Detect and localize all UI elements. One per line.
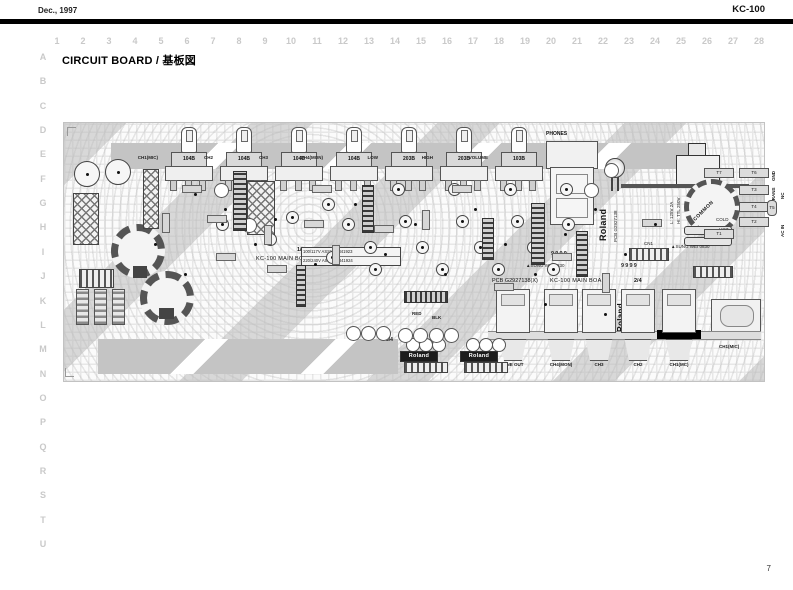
transistor — [436, 263, 449, 276]
ac-in-label: AC IN — [780, 225, 785, 237]
transistor — [369, 263, 382, 276]
pot-volume: 103BVOLUME — [490, 127, 546, 191]
sub-board-connector — [464, 362, 508, 373]
jack-ch1-mc-: CH1(MC) — [660, 289, 698, 381]
transistor — [547, 263, 560, 276]
grid-row-T: T — [36, 515, 50, 525]
solder-pad — [154, 243, 157, 246]
pot-base — [330, 166, 378, 181]
transistor — [511, 215, 524, 228]
grid-col-15: 15 — [411, 36, 431, 46]
pot-channel-label: CH2 — [183, 155, 213, 160]
solder-pad — [274, 218, 277, 221]
resistor — [422, 210, 430, 230]
solder-pad — [184, 273, 187, 276]
grid-col-2: 2 — [73, 36, 93, 46]
capacitor — [584, 183, 599, 198]
solder-pad — [564, 233, 567, 236]
pot-legs — [280, 180, 316, 189]
corner-mark-top-left — [67, 127, 76, 136]
pot-notch — [461, 130, 468, 142]
jack-plug — [663, 339, 695, 361]
resistor — [264, 225, 272, 245]
pot-notch — [406, 130, 413, 142]
ic-package — [233, 171, 247, 231]
transistor — [392, 183, 405, 196]
transistor — [342, 218, 355, 231]
grid-row-J: J — [36, 271, 50, 281]
resistor — [267, 265, 287, 273]
transistor — [504, 183, 517, 196]
roland-logo-sub: Roland — [460, 351, 498, 362]
grid-col-22: 22 — [593, 36, 613, 46]
capacitor — [361, 326, 376, 341]
grid-col-8: 8 — [229, 36, 249, 46]
led-lead-1 — [611, 177, 613, 191]
grid-row-G: G — [36, 198, 50, 208]
terminal-pad-t5: T5 — [767, 200, 777, 216]
resistor — [207, 215, 227, 223]
terminal-pad-t3: T3 — [739, 185, 769, 195]
terminal-pad-t1: T1 — [704, 229, 734, 239]
jack-body — [544, 289, 578, 333]
jack-body — [621, 289, 655, 333]
solder-pad — [224, 208, 227, 211]
blk-wire-label: BLK — [432, 315, 441, 320]
ic-package — [576, 231, 588, 277]
pcb-number-1: PCB G2927138 — [613, 210, 618, 242]
transistor — [492, 263, 505, 276]
header-model: KC-100 — [732, 4, 765, 15]
grid-col-14: 14 — [385, 36, 405, 46]
capacitor — [413, 328, 428, 343]
grid-row-H: H — [36, 222, 50, 232]
grid-col-10: 10 — [281, 36, 301, 46]
pot-notch — [186, 130, 193, 142]
grid-col-9: 9 — [255, 36, 275, 46]
transistor — [560, 183, 573, 196]
solder-pad — [384, 253, 387, 256]
solder-pad — [414, 223, 417, 226]
cn1-connector — [629, 248, 669, 261]
pot-channel-label: CH4(MON) — [293, 155, 323, 160]
grid-col-13: 13 — [359, 36, 379, 46]
grid-col-23: 23 — [619, 36, 639, 46]
solder-pad — [534, 273, 537, 276]
solder-pad — [444, 273, 447, 276]
jack-plug — [583, 339, 615, 361]
phones-jack — [546, 141, 598, 169]
terminal-pad-t7: T7 — [704, 168, 734, 178]
capacitor — [398, 328, 413, 343]
terminal-pad-t6: T6 — [739, 168, 769, 178]
ic-package — [482, 218, 494, 260]
grid-col-4: 4 — [125, 36, 145, 46]
xlr-label: CH1(MIC) — [719, 344, 739, 349]
header-rule — [0, 19, 793, 24]
pot-notch — [296, 130, 303, 142]
grid-col-3: 3 — [99, 36, 119, 46]
grid-col-25: 25 — [671, 36, 691, 46]
xlr-connector — [711, 299, 761, 333]
resistor — [312, 185, 332, 193]
pot-base — [275, 166, 323, 181]
grid-col-16: 16 — [437, 36, 457, 46]
date-stamp-2: 9999 — [621, 263, 638, 269]
jack-body — [496, 289, 530, 333]
header-date: Dec., 1997 — [38, 6, 77, 15]
cn1-label: CN1 — [644, 241, 653, 246]
solder-pad — [474, 208, 477, 211]
manual-page: Dec., 1997 KC-100 1234567891011121314151… — [0, 0, 793, 590]
grid-row-M: M — [36, 344, 50, 354]
resistor-array-1 — [76, 289, 89, 325]
solder-pad — [194, 193, 197, 196]
grid-row-C: C — [36, 101, 50, 111]
grid-col-12: 12 — [333, 36, 353, 46]
transistor — [286, 211, 299, 224]
resistor-array-2 — [94, 289, 107, 325]
transistor — [399, 215, 412, 228]
pot-notch — [351, 130, 358, 142]
terminal-pad-t2: T2 — [739, 217, 769, 227]
pot-notch — [241, 130, 248, 142]
resistor — [374, 225, 394, 233]
resistor — [216, 253, 236, 261]
solder-pad — [314, 263, 317, 266]
grid-row-K: K — [36, 296, 50, 306]
page-number: 7 — [767, 564, 771, 573]
solder-pad — [354, 203, 357, 206]
pot-notch — [516, 130, 523, 142]
grid-col-19: 19 — [515, 36, 535, 46]
grid-col-20: 20 — [541, 36, 561, 46]
grid-col-6: 6 — [177, 36, 197, 46]
grid-row-P: P — [36, 417, 50, 427]
pot-base — [495, 166, 543, 181]
transistor — [456, 215, 469, 228]
vendor-stamp-2: ▲SUNG WEI 0830 — [671, 244, 709, 249]
grid-col-27: 27 — [723, 36, 743, 46]
cold-label: COLD — [716, 217, 729, 222]
grid-row-B: B — [36, 76, 50, 86]
grid-col-11: 11 — [307, 36, 327, 46]
pot-channel-label: CH1(MIC) — [128, 155, 158, 160]
solder-pad — [594, 208, 597, 211]
terminal-pad-t4: T4 — [739, 202, 769, 212]
jack-body — [582, 289, 616, 333]
fuse-rating-l: L: 125V 2A — [669, 202, 674, 224]
xlr-flange — [708, 331, 761, 340]
jack-plug — [545, 339, 577, 361]
pot-channel-label: HIGH — [403, 155, 433, 160]
ic-package — [362, 185, 374, 233]
transistor — [416, 241, 429, 254]
solder-pad — [254, 243, 257, 246]
power-connector — [79, 269, 114, 288]
grid-row-R: R — [36, 466, 50, 476]
page-title: CIRCUIT BOARD / 基板図 — [62, 52, 196, 68]
capacitor — [214, 183, 229, 198]
sub-board-connector — [404, 362, 448, 373]
power-resistor-1 — [73, 193, 99, 245]
nc-label: NC — [780, 193, 785, 200]
power-resistor-2 — [143, 169, 159, 229]
red-wire-label: RED — [412, 311, 422, 316]
circuit-board-diagram: PHONES COMMON L: 125V 2A HI: TTL 250V GN… — [63, 122, 765, 382]
pot-base — [440, 166, 488, 181]
pot-channel-label: LOW — [348, 155, 378, 160]
grid-col-7: 7 — [203, 36, 223, 46]
transistor — [562, 218, 575, 231]
grid-row-F: F — [36, 174, 50, 184]
resistor — [452, 185, 472, 193]
resistor — [182, 185, 202, 193]
capacitor — [429, 328, 444, 343]
grid-row-Q: Q — [36, 442, 50, 452]
capacitor — [376, 326, 391, 341]
grid-col-24: 24 — [645, 36, 665, 46]
jack-ch4-mon-: CH4(MON) — [542, 289, 580, 381]
grid-row-D: D — [36, 125, 50, 135]
grid-col-1: 1 — [47, 36, 67, 46]
fuse-rating-h: HI: TTL 250V — [676, 197, 681, 224]
jack-plug — [622, 339, 654, 361]
grid-row-L: L — [36, 320, 50, 330]
led-lead-2 — [617, 177, 619, 191]
resistor — [494, 283, 514, 291]
grid-row-I: I — [36, 247, 50, 257]
grid-row-S: S — [36, 490, 50, 500]
solder-pad — [504, 243, 507, 246]
header-connector — [693, 266, 733, 278]
resistor — [602, 273, 610, 293]
grid-col-18: 18 — [489, 36, 509, 46]
transistor — [364, 241, 377, 254]
grid-col-28: 28 — [749, 36, 769, 46]
sub-board-capacitor — [479, 338, 493, 352]
grid-row-A: A — [36, 52, 50, 62]
resistor — [162, 213, 170, 233]
grid-row-U: U — [36, 539, 50, 549]
solder-pad — [544, 303, 547, 306]
capacitor — [604, 163, 619, 178]
grid-row-O: O — [36, 393, 50, 403]
resistor-array-3 — [112, 289, 125, 325]
roland-logo-1: Roland — [598, 209, 608, 241]
power-transistor-left-2 — [105, 159, 131, 185]
sub-board-capacitor — [466, 338, 480, 352]
pot-channel-label: CH3 — [238, 155, 268, 160]
pot-channel-label: VOLUME — [458, 155, 488, 160]
capacitor — [444, 328, 459, 343]
grid-col-17: 17 — [463, 36, 483, 46]
pot-value: 103B — [501, 152, 537, 167]
gnd-label: GND — [771, 171, 776, 181]
jack-body — [662, 289, 696, 333]
resistor — [332, 245, 340, 265]
corner-mark-bottom-left — [65, 368, 74, 377]
capacitor — [346, 326, 361, 341]
grid-col-21: 21 — [567, 36, 587, 46]
sub-board-capacitor — [492, 338, 506, 352]
phones-label: PHONES — [546, 132, 567, 138]
jack-ch3: CH3 — [580, 289, 618, 381]
solder-pad — [624, 253, 627, 256]
grid-col-26: 26 — [697, 36, 717, 46]
roland-logo-sub: Roland — [400, 351, 438, 362]
ic-package — [531, 203, 545, 265]
grid-row-N: N — [36, 369, 50, 379]
pot-base — [385, 166, 433, 181]
main2-fraction: 2/4 — [634, 278, 642, 284]
transistor — [322, 198, 335, 211]
power-transistor-left-1 — [74, 161, 100, 187]
toroid-marker-1 — [133, 266, 147, 278]
jack-ch2: CH2 — [619, 289, 657, 381]
solder-pad — [604, 313, 607, 316]
grid-row-E: E — [36, 149, 50, 159]
solder-pad — [654, 223, 657, 226]
grid-col-5: 5 — [151, 36, 171, 46]
resistor — [552, 253, 572, 261]
ic-package — [296, 265, 306, 307]
resistor — [642, 219, 662, 227]
ic-package-horizontal — [404, 291, 448, 303]
toroid-marker-2 — [159, 308, 174, 319]
bottom-shade-band — [98, 339, 398, 374]
resistor — [304, 220, 324, 228]
pot-base — [165, 166, 213, 181]
jack-label: CH1(MC) — [652, 362, 706, 367]
